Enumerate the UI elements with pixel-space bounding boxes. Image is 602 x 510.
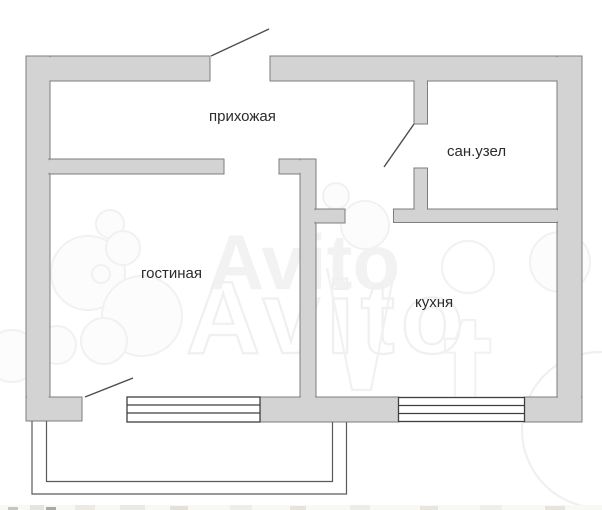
svg-text:сан.узел: сан.узел: [447, 143, 506, 160]
svg-text:кухня: кухня: [415, 294, 453, 311]
svg-text:гостиная: гостиная: [141, 265, 202, 282]
svg-text:прихожая: прихожая: [209, 108, 276, 125]
